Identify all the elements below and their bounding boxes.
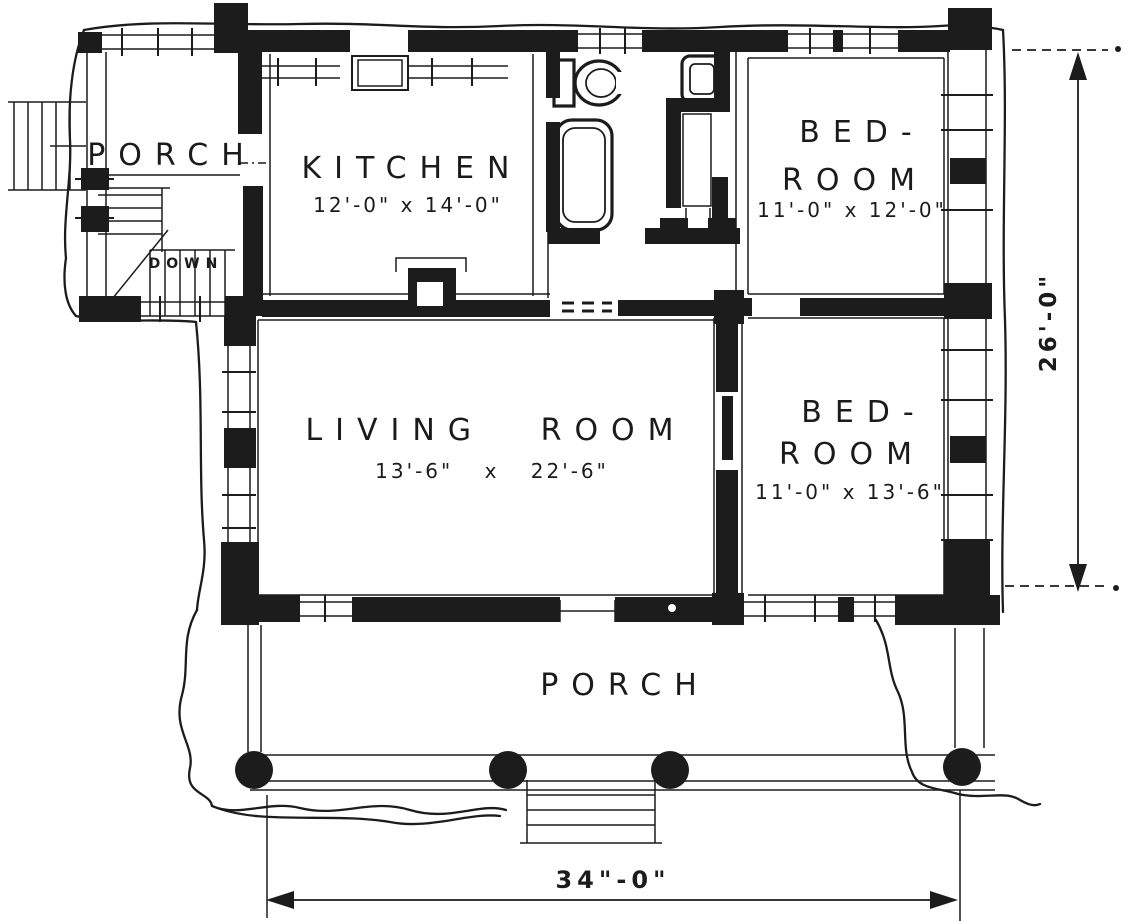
wall-post — [214, 3, 248, 53]
bedroom-bottom-label-2: ROOM — [779, 437, 925, 472]
hall-opening — [562, 303, 612, 311]
kitchen-label: KITCHEN — [302, 151, 523, 186]
front-porch — [235, 625, 995, 843]
bathroom — [554, 56, 722, 238]
room-living: LIVING ROOM 13'-6" x 22'-6" — [305, 413, 686, 483]
walls — [78, 3, 1000, 625]
terrain-left — [179, 610, 506, 814]
toilet-fixture — [554, 60, 628, 106]
width-dimension-label: 34"-0" — [555, 866, 670, 894]
depth-dimension-label: 26'-0" — [1036, 272, 1062, 373]
porch-front-label: PORCH — [540, 668, 710, 703]
outline-right — [1002, 30, 1005, 612]
kitchen-size: 12'-0" x 14'-0" — [313, 193, 503, 217]
porch-column — [235, 751, 273, 789]
room-kitchen: KITCHEN 12'-0" x 14'-0" — [302, 151, 523, 217]
room-porch-left: PORCH — [87, 138, 268, 175]
bedroom-top-label-1: BED- — [799, 115, 924, 150]
side-entry-steps — [8, 102, 86, 190]
living-room-size: 13'-6" x 22'-6" — [375, 459, 609, 483]
room-bedroom-top: BED- ROOM 11'-0" x 12'-0" — [757, 115, 947, 222]
bathtub-fixture — [556, 120, 612, 230]
wall-post — [948, 8, 992, 50]
bedroom-top-label-2: ROOM — [782, 163, 928, 198]
stairs-down-label: DOWN — [149, 256, 224, 272]
bedroom-bottom-size: 11'-0" x 13'-6" — [755, 480, 945, 504]
porch-column — [651, 751, 689, 789]
outline-left-lower — [196, 322, 205, 610]
porch-column — [943, 748, 981, 786]
porch-left-label: PORCH — [87, 138, 257, 173]
living-room-label: LIVING ROOM — [305, 413, 686, 448]
bedroom-bottom-label-1: BED- — [801, 395, 926, 430]
floor-plan-drawing: DOWN — [0, 0, 1125, 921]
room-bedroom-bottom: BED- ROOM 11'-0" x 13'-6" — [755, 395, 945, 504]
floor-plan-page: DOWN — [0, 0, 1125, 921]
dimension-depth: 26'-0" — [1005, 46, 1121, 592]
kitchen-sink-fixture — [352, 56, 408, 90]
porch-column — [489, 751, 527, 789]
room-porch-front: PORCH — [540, 668, 710, 703]
door-leaf — [722, 396, 733, 460]
bedroom-top-size: 11'-0" x 12'-0" — [757, 198, 947, 222]
